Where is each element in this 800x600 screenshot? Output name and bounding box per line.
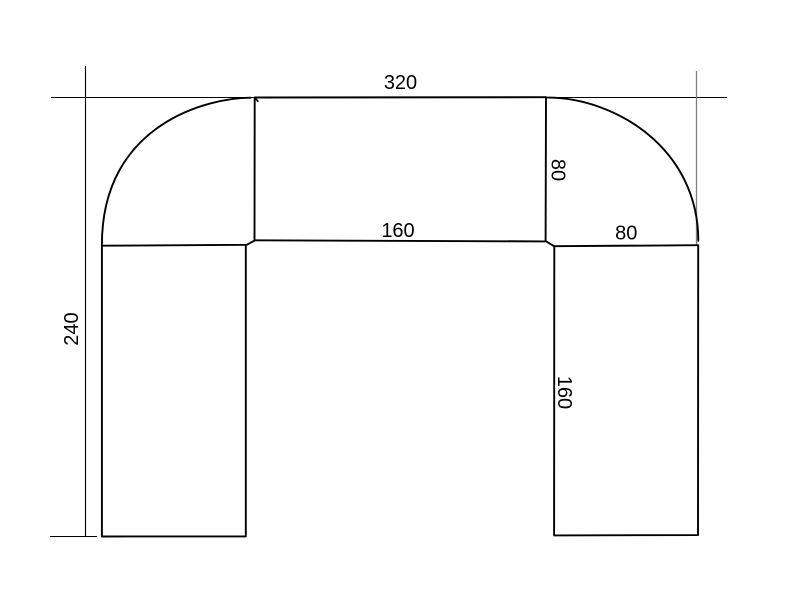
svg-text:80: 80 — [546, 159, 568, 181]
svg-text:80: 80 — [615, 223, 637, 245]
svg-text:240: 240 — [61, 312, 83, 345]
svg-text:160: 160 — [553, 376, 575, 409]
svg-text:160: 160 — [381, 220, 414, 242]
svg-text:320: 320 — [384, 72, 417, 94]
